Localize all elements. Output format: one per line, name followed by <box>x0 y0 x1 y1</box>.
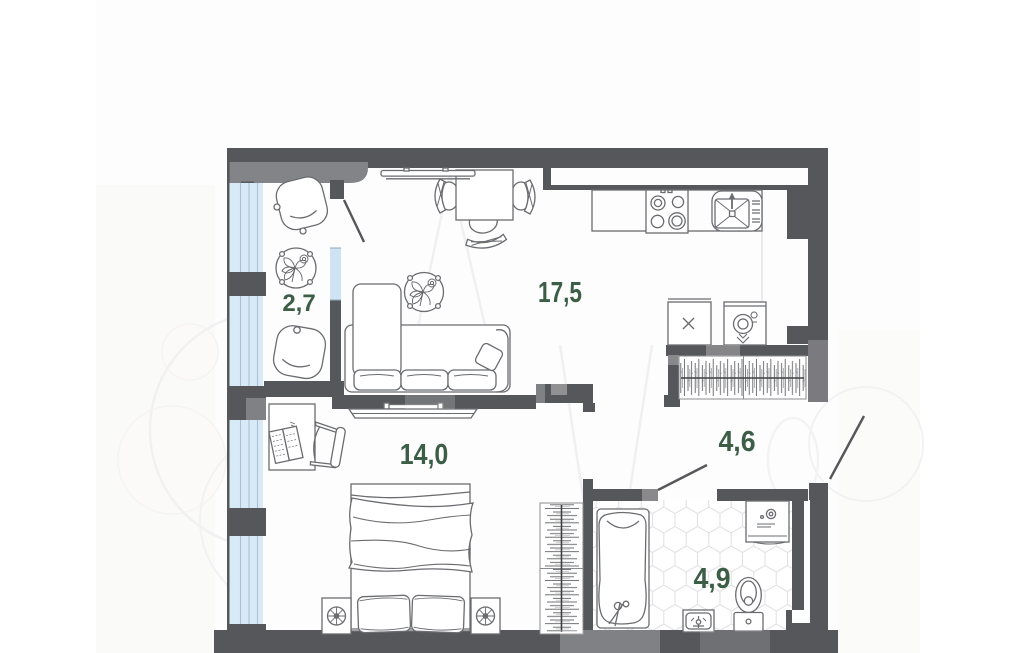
svg-text:4,6: 4,6 <box>718 425 755 457</box>
svg-text:4,9: 4,9 <box>693 562 730 594</box>
svg-text:2,7: 2,7 <box>282 290 315 317</box>
svg-text:17,5: 17,5 <box>538 275 582 308</box>
svg-text:14,0: 14,0 <box>400 438 449 470</box>
